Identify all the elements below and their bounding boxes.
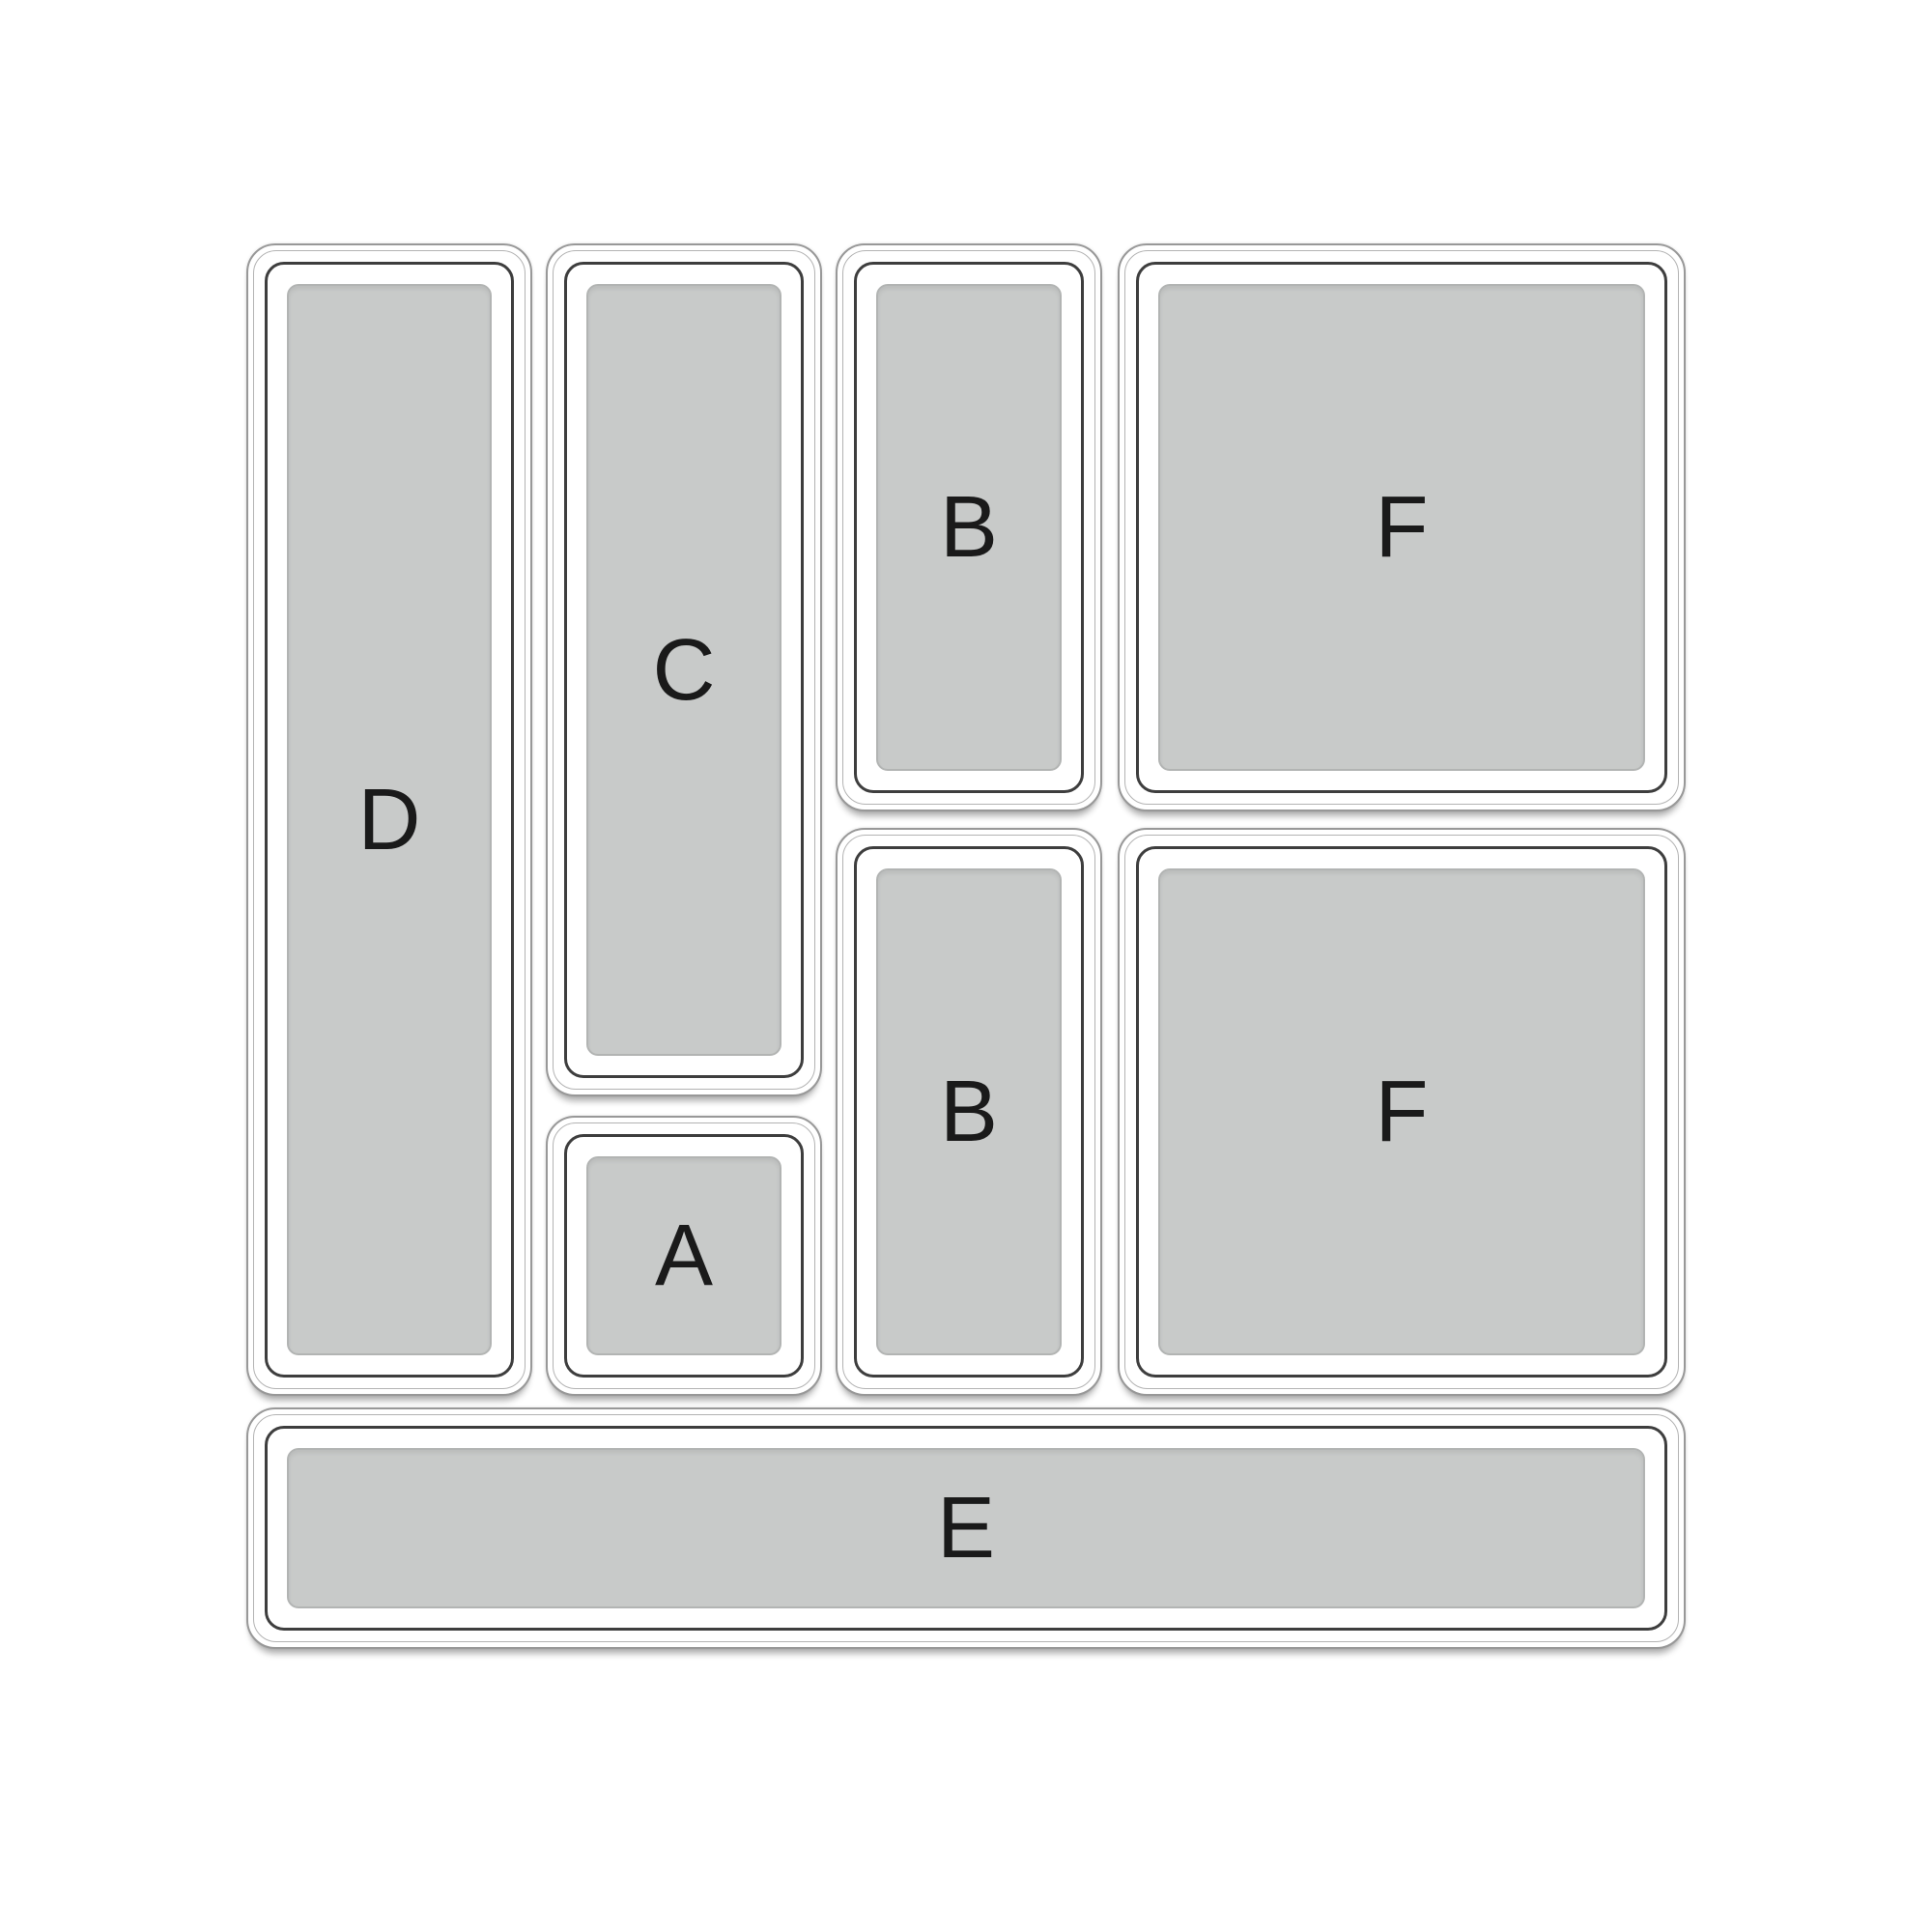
tray-b-top-base: B bbox=[876, 284, 1062, 771]
tray-c-label: C bbox=[653, 627, 716, 714]
tray-b-top: B bbox=[836, 243, 1102, 811]
drawer-organizer-diagram: D C A B B F bbox=[0, 0, 1932, 1932]
tray-b-bottom-label: B bbox=[940, 1068, 998, 1155]
tray-f-bottom-base: F bbox=[1158, 868, 1645, 1355]
tray-b-bottom: B bbox=[836, 828, 1102, 1396]
tray-f-top: F bbox=[1118, 243, 1686, 811]
tray-e-base: E bbox=[287, 1448, 1645, 1608]
tray-b-bottom-base: B bbox=[876, 868, 1062, 1355]
tray-a-label: A bbox=[655, 1212, 713, 1299]
tray-f-top-base: F bbox=[1158, 284, 1645, 771]
tray-a: A bbox=[546, 1116, 822, 1396]
tray-f-top-label: F bbox=[1376, 484, 1429, 571]
tray-e-label: E bbox=[937, 1485, 995, 1572]
tray-a-base: A bbox=[586, 1156, 781, 1355]
tray-c: C bbox=[546, 243, 822, 1096]
tray-e: E bbox=[246, 1407, 1686, 1649]
tray-b-top-label: B bbox=[940, 484, 998, 571]
tray-f-bottom: F bbox=[1118, 828, 1686, 1396]
tray-d-label: D bbox=[358, 777, 421, 864]
tray-f-bottom-label: F bbox=[1376, 1068, 1429, 1155]
tray-d: D bbox=[246, 243, 532, 1396]
tray-d-base: D bbox=[287, 284, 492, 1355]
tray-c-base: C bbox=[586, 284, 781, 1056]
